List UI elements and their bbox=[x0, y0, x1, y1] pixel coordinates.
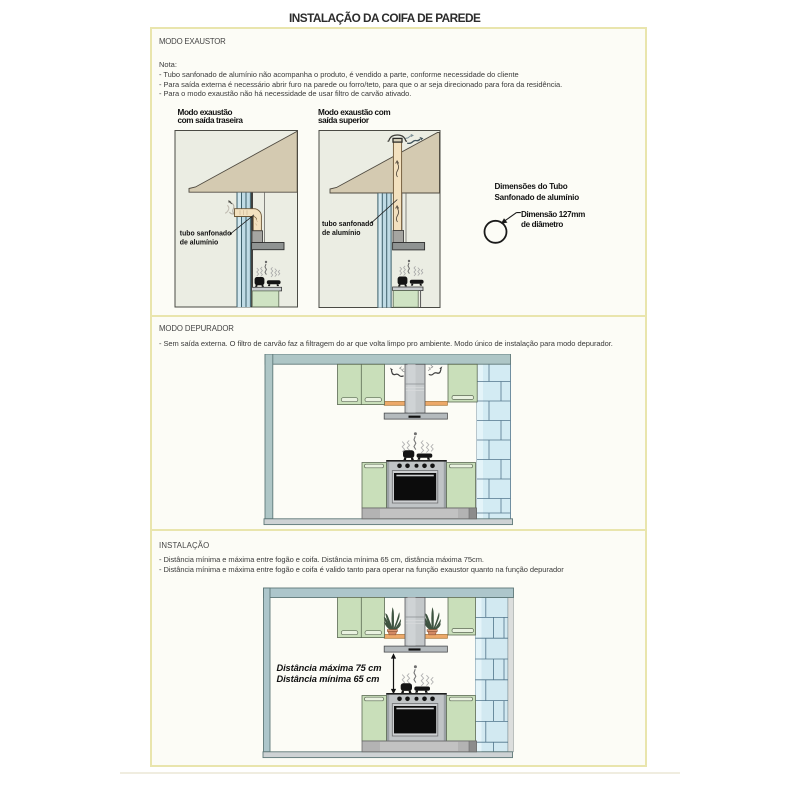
svg-text:tubo sanfonado: tubo sanfonado bbox=[180, 229, 232, 238]
svg-text:tubo sanfonado: tubo sanfonado bbox=[322, 219, 374, 228]
svg-text:de alumínio: de alumínio bbox=[180, 238, 219, 247]
svg-text:de alumínio: de alumínio bbox=[322, 228, 361, 237]
